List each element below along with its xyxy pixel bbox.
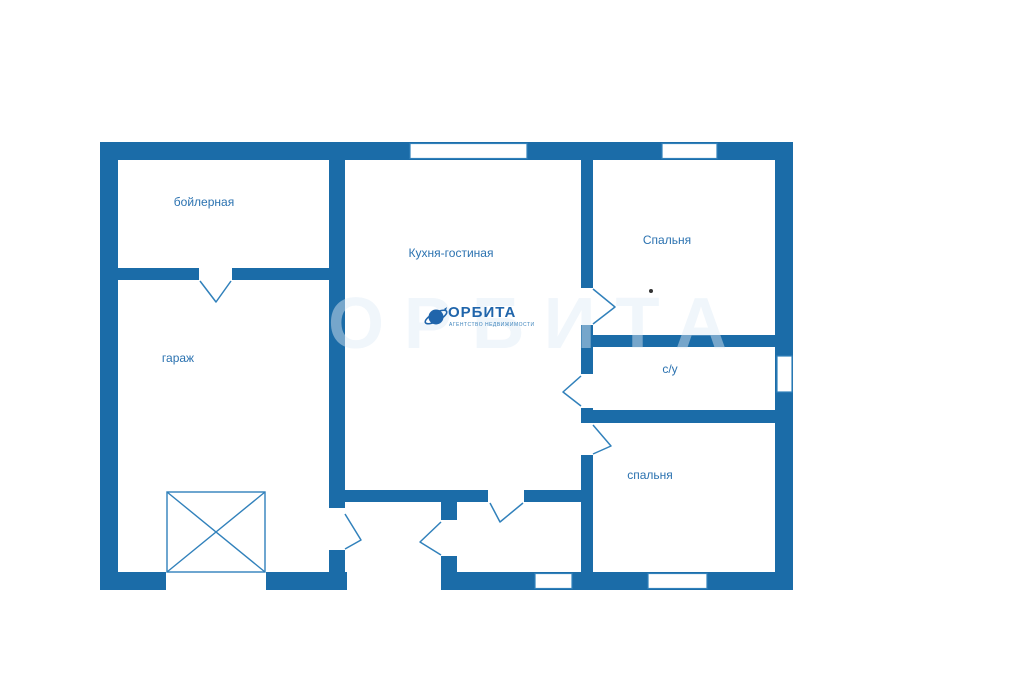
wall-garage-kitchen <box>329 160 345 508</box>
wall-vestibule-2 <box>441 556 457 572</box>
wall-kitchen-right-4 <box>581 455 593 572</box>
window-bedroom-bottom <box>648 574 707 589</box>
door-bedroom-bottom <box>593 425 611 454</box>
point-marker <box>649 289 653 293</box>
wall-bathroom-bedroom2 <box>581 410 775 423</box>
windows <box>410 144 792 589</box>
floor-plan-drawing <box>0 0 1024 700</box>
door-garage-vestibule <box>345 514 361 549</box>
wall-outer-left <box>100 142 118 590</box>
door-bedroom-top <box>593 289 615 324</box>
wall-bedroom-bathroom <box>593 335 775 347</box>
wall-kitchen-right-1 <box>581 160 593 288</box>
floor-plan-page: ОРБИТА <box>0 0 1024 700</box>
entrance-opening <box>347 571 441 591</box>
orbit-planet-icon <box>423 303 449 331</box>
window-hall-bottom <box>535 574 572 589</box>
wall-kitchen-hall-right <box>524 490 581 502</box>
window-bathroom <box>777 356 792 392</box>
wall-garage-corner-block <box>329 550 345 572</box>
wall-kitchen-hall-left <box>331 490 488 502</box>
wall-boiler-garage-right <box>232 268 329 280</box>
logo-tagline: АГЕНТСТВО НЕДВИЖИМОСТИ <box>449 322 535 328</box>
garage-gate-symbol <box>167 492 265 572</box>
wall-boiler-garage-left <box>118 268 199 280</box>
wall-vestibule-1 <box>441 502 457 520</box>
wall-kitchen-right-2 <box>581 325 593 374</box>
window-bedroom-top <box>662 144 717 159</box>
logo-name: ОРБИТА <box>448 304 516 321</box>
agency-logo: ОРБИТА АГЕНТСТВО НЕДВИЖИМОСТИ <box>423 301 523 335</box>
door-bathroom <box>563 376 581 406</box>
window-kitchen <box>410 144 527 159</box>
door-boiler-room <box>200 281 231 302</box>
door-vestibule-hall <box>420 522 441 555</box>
door-kitchen-hall <box>490 503 523 522</box>
garage-gate-opening <box>166 571 266 591</box>
